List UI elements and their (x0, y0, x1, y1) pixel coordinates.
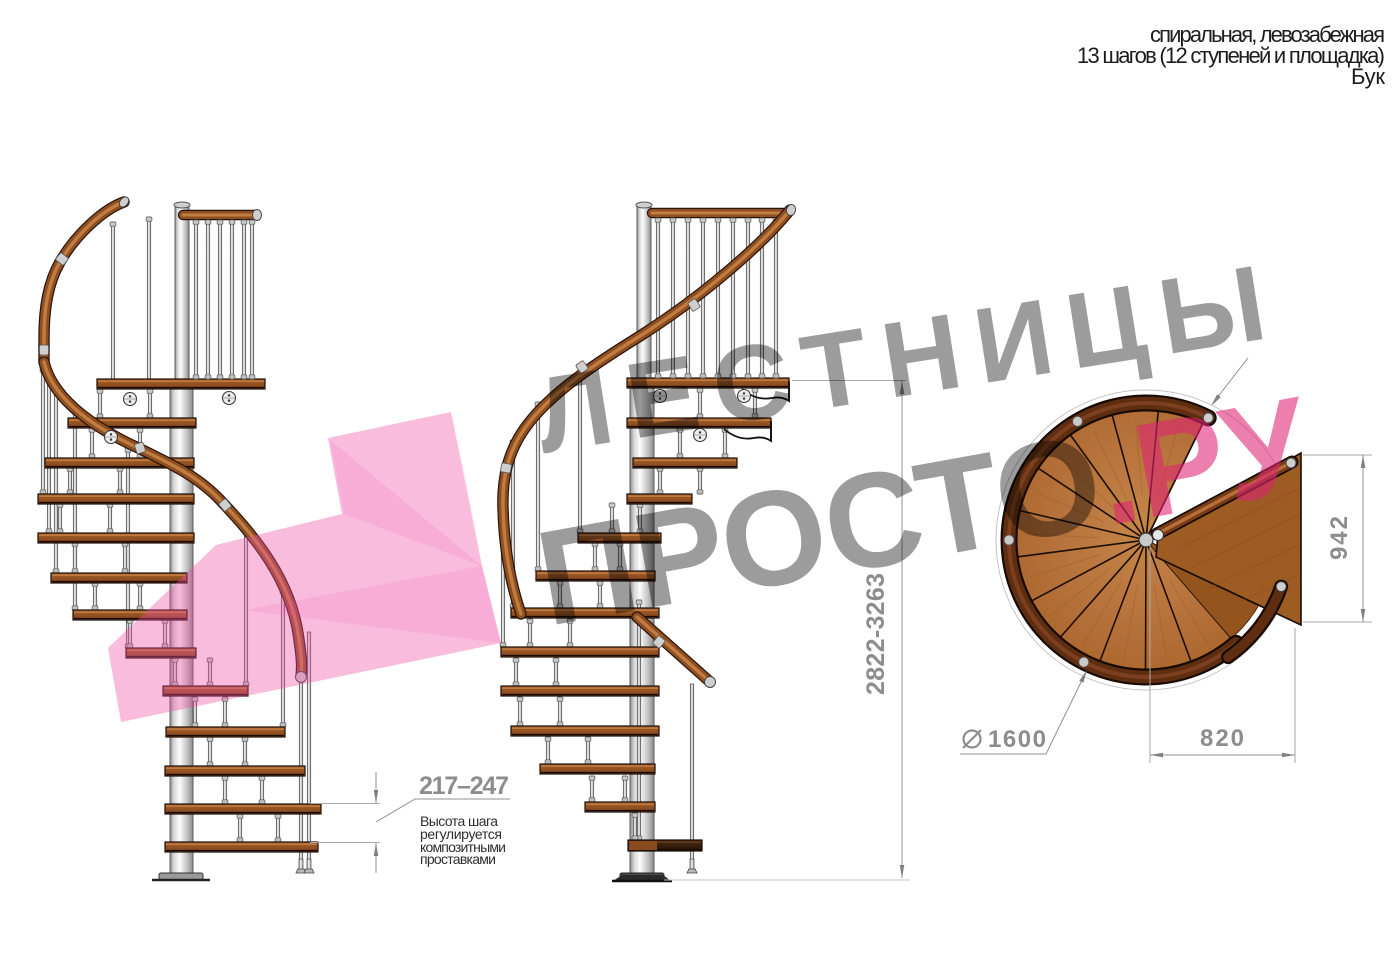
svg-text:820: 820 (1200, 725, 1244, 752)
svg-text:Бук: Бук (1351, 64, 1385, 89)
svg-text:проставками: проставками (420, 851, 496, 867)
svg-text:13 шагов (12 ступеней и площад: 13 шагов (12 ступеней и площадка) (1077, 43, 1385, 68)
svg-text:217–247: 217–247 (419, 772, 509, 800)
svg-text:942: 942 (1326, 516, 1353, 560)
svg-text:1600: 1600 (988, 726, 1046, 753)
